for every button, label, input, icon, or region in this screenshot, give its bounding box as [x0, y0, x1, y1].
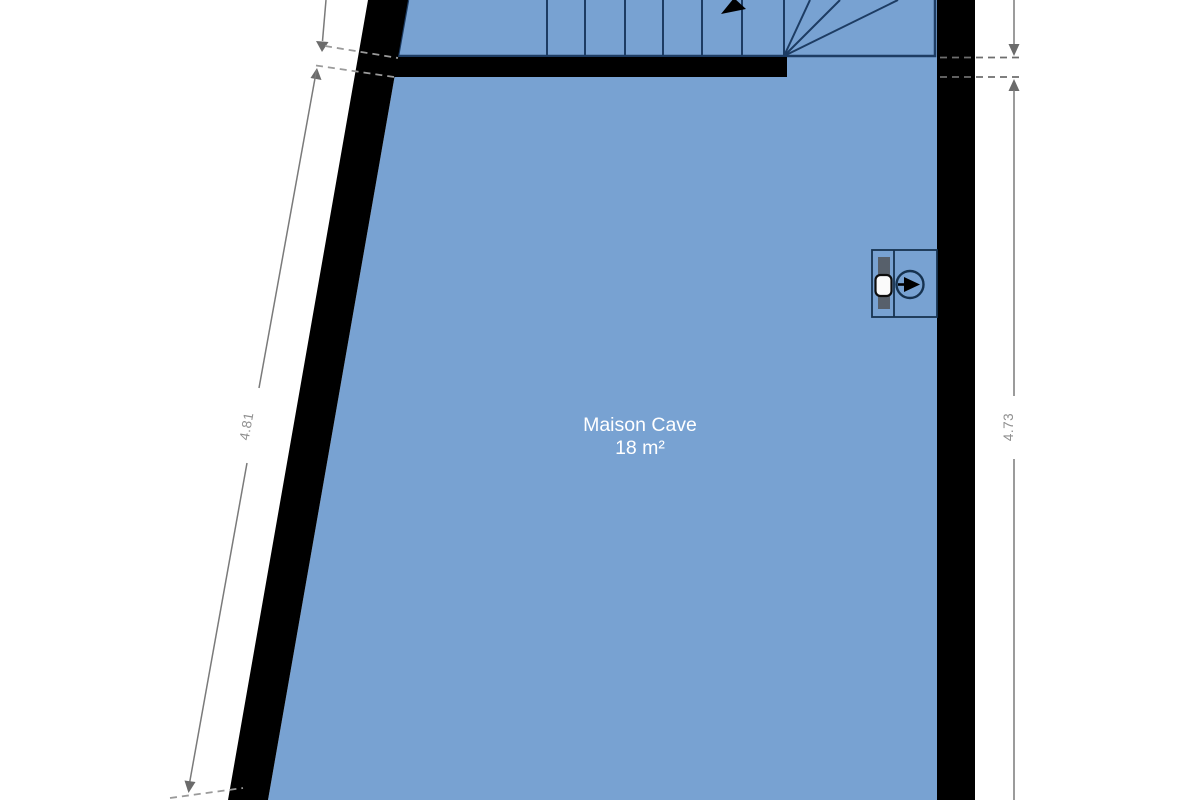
boiler-window-icon — [876, 275, 892, 296]
wall-under-stairs — [393, 57, 787, 77]
dimension-left-main-line-b — [189, 463, 247, 786]
dimension-right-upper-arrow-icon — [1009, 44, 1020, 56]
floorplan-svg: 4.81 4.73 Maison Cave 18 m² — [0, 0, 1200, 800]
floorplan-canvas: 4.81 4.73 Maison Cave 18 m² — [0, 0, 1200, 800]
dimension-left-main-line-a — [259, 70, 317, 388]
room-area: 18 m² — [615, 437, 665, 459]
dimension-right-main-arrow-top-icon — [1009, 79, 1020, 91]
dimension-left-upper-line — [323, 0, 327, 41]
wall-right — [937, 0, 975, 800]
dimension-left-main-arrow-bottom-icon — [185, 781, 196, 794]
room-name: Maison Cave — [583, 414, 697, 436]
dimension-left-label: 4.81 — [237, 411, 257, 441]
dimension-right-label: 4.73 — [1001, 413, 1016, 441]
